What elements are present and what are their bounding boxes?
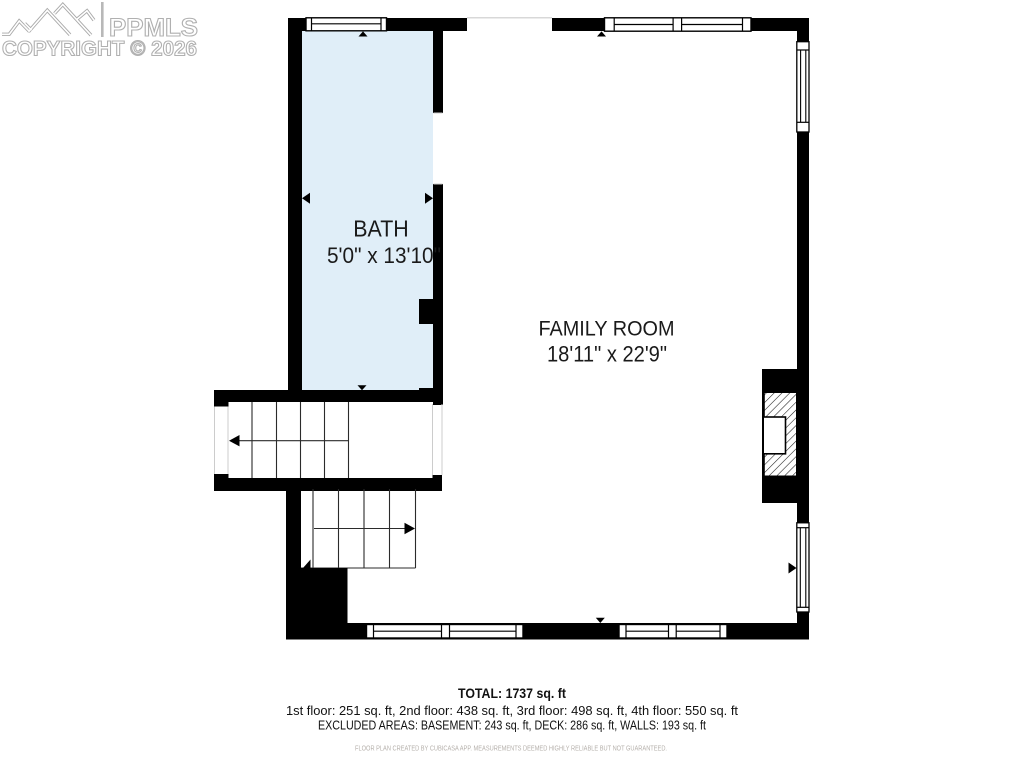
svg-text:BATH: BATH — [353, 216, 409, 242]
svg-text:EXCLUDED AREAS: BASEMENT: 243: EXCLUDED AREAS: BASEMENT: 243 sq. ft, DE… — [318, 717, 706, 732]
svg-text:5'0" x 13'10": 5'0" x 13'10" — [327, 243, 441, 268]
svg-text:FLOOR PLAN CREATED BY CUBICASA: FLOOR PLAN CREATED BY CUBICASA APP. MEAS… — [355, 744, 667, 753]
svg-text:18'11" x 22'9": 18'11" x 22'9" — [547, 342, 667, 367]
svg-text:COPYRIGHT © 2026: COPYRIGHT © 2026 — [2, 38, 197, 61]
svg-text:1st floor: 251 sq. ft, 2nd flo: 1st floor: 251 sq. ft, 2nd floor: 438 sq… — [286, 703, 738, 718]
svg-text:TOTAL: 1737 sq. ft: TOTAL: 1737 sq. ft — [458, 686, 566, 701]
svg-text:FAMILY ROOM: FAMILY ROOM — [539, 318, 675, 341]
